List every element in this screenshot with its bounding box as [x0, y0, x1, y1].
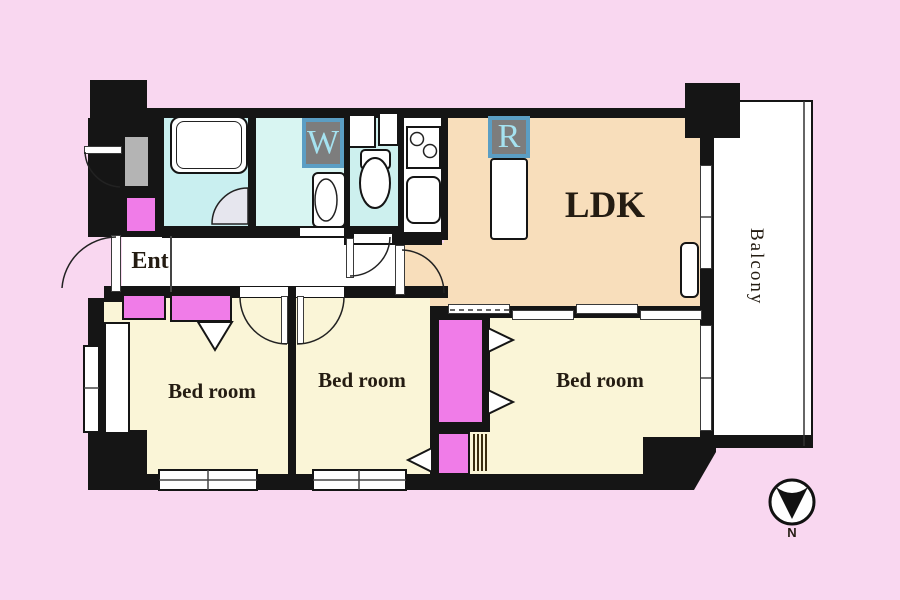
bedroom1-closet	[170, 294, 232, 322]
compass-needle	[776, 487, 808, 519]
floor-plan: W R	[0, 0, 900, 600]
washing-machine-icon: W	[302, 118, 344, 168]
washroom-sink	[312, 172, 346, 228]
refrigerator-letter: R	[498, 118, 521, 156]
utility-door-panel	[84, 146, 122, 154]
window-bedroom2-bottom	[312, 469, 407, 491]
window-bedroom1-left	[83, 345, 100, 433]
wall-balcony-bottom	[713, 435, 813, 448]
wall-bath-washroom	[248, 112, 256, 228]
meter-box	[123, 135, 150, 188]
ldk-door-panel	[395, 245, 405, 295]
kitchen-sink	[406, 176, 441, 224]
sliding-door-ldk-balcony	[700, 165, 712, 269]
bedroom3-closet-lower	[437, 432, 470, 475]
ldk-label: LDK	[545, 186, 665, 227]
compass-circle	[770, 480, 814, 524]
sliding-panel-1	[448, 304, 510, 314]
wall-bed2-closet	[430, 310, 437, 482]
compass-north-label: N	[785, 526, 799, 540]
hall-storage-left	[122, 294, 166, 320]
sliding-panel-4	[640, 310, 702, 320]
bedroom2-door-panel	[297, 296, 304, 344]
toilet-cabinet	[378, 112, 399, 146]
entrance-door-arc	[62, 237, 116, 288]
washing-machine-letter: W	[307, 124, 339, 162]
stove	[406, 126, 441, 169]
balcony-label: Balcony	[745, 228, 767, 328]
bedroom3-label: Bed room	[520, 369, 680, 392]
compass	[770, 480, 814, 524]
entrance-label: Ent	[120, 248, 180, 274]
wall-closet-right	[484, 318, 490, 424]
bedroom2-label: Bed room	[282, 369, 442, 392]
bathtub-inner	[176, 121, 242, 169]
window-bedroom1-bottom	[158, 469, 258, 491]
door-opening-washroom	[300, 228, 344, 236]
toilet-door-panel	[346, 238, 354, 278]
refrigerator-body	[490, 158, 528, 240]
sliding-panel-2	[512, 310, 574, 320]
bedroom3-closet-upper	[437, 318, 484, 424]
bedroom1-door-panel	[281, 296, 288, 344]
wall-kitchen-ldk	[441, 112, 448, 240]
sliding-panel-3	[576, 304, 638, 314]
ldk-counter	[680, 242, 699, 298]
bedroom1-label: Bed room	[132, 380, 292, 403]
refrigerator-icon: R	[488, 116, 530, 158]
door-opening-toilet	[354, 234, 392, 243]
window-bedroom3-right	[700, 325, 712, 431]
closet-bedroom1-left	[104, 322, 130, 434]
entrance-shoe-cabinet	[125, 196, 157, 233]
wall-closet-mid	[430, 424, 490, 432]
toilet-shelf	[348, 114, 376, 148]
